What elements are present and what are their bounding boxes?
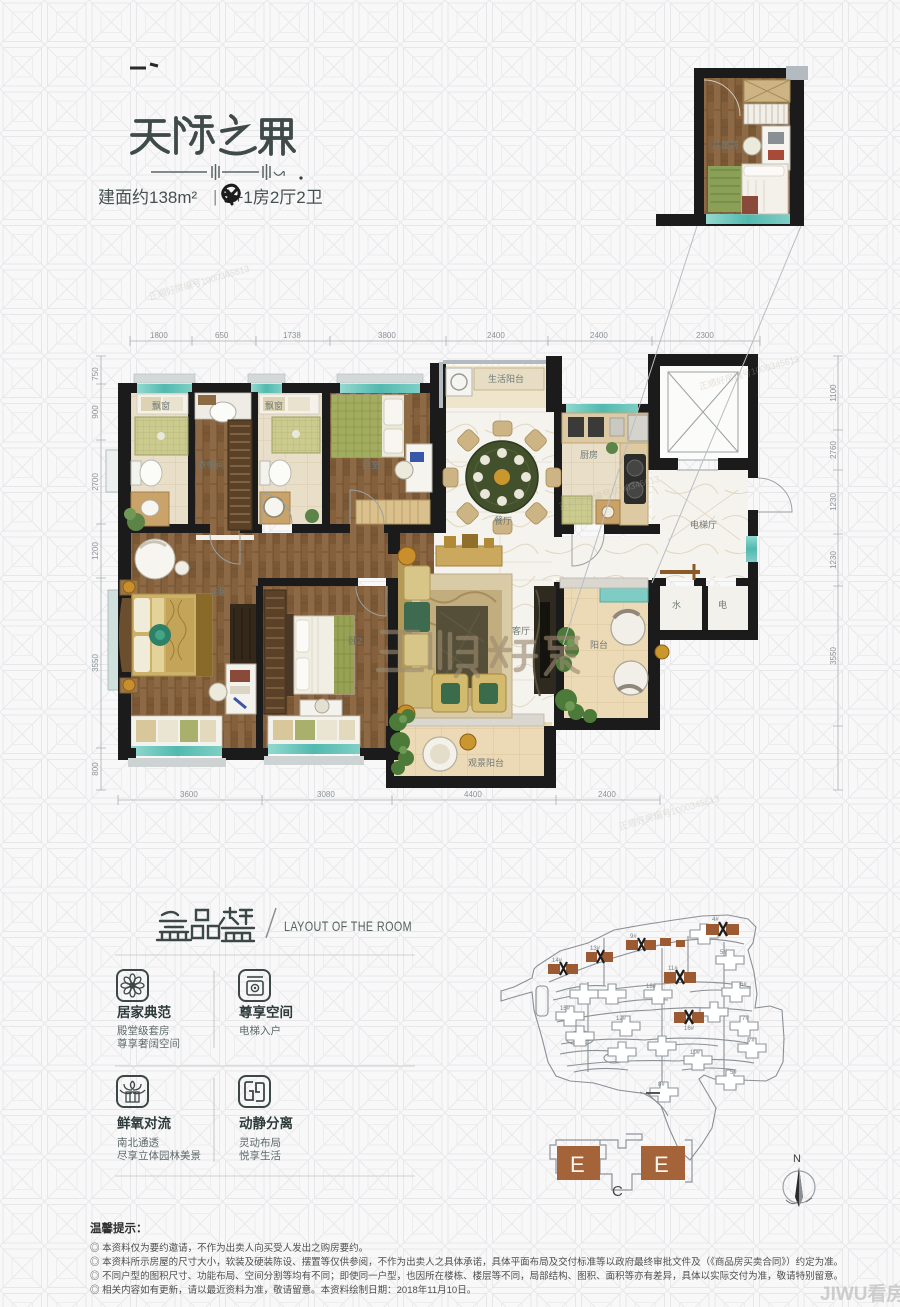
svg-text:1738: 1738 — [283, 331, 301, 340]
svg-text:8#: 8# — [658, 1082, 665, 1088]
svg-text:13#: 13# — [590, 946, 601, 952]
svg-text:悦享生活: 悦享生活 — [239, 1149, 281, 1162]
svg-text:◎ 相关内容如有更新，请以最近资料为准，敬请留意。本资料绘制: ◎ 相关内容如有更新，请以最近资料为准，敬请留意。本资料绘制日期：2018年11… — [90, 1284, 476, 1296]
svg-text:观景阳台: 观景阳台 — [468, 757, 504, 768]
svg-text:9#: 9# — [630, 934, 637, 940]
svg-text:温馨提示：: 温馨提示： — [90, 1221, 148, 1235]
svg-text:7#: 7# — [742, 1016, 749, 1022]
svg-text:1230: 1230 — [829, 493, 838, 511]
svg-text:尊享空间: 尊享空间 — [239, 1004, 293, 1020]
svg-text:居家典范: 居家典范 — [117, 1004, 171, 1020]
svg-text:1200: 1200 — [91, 542, 100, 560]
svg-text:10#: 10# — [690, 1050, 701, 1056]
svg-text:建面约138m²: 建面约138m² — [98, 188, 198, 207]
svg-text:2700: 2700 — [91, 473, 100, 491]
svg-text:2400: 2400 — [590, 331, 608, 340]
svg-text:主卧: 主卧 — [210, 586, 228, 597]
svg-text:11#: 11# — [668, 966, 678, 972]
svg-text:3800: 3800 — [378, 331, 396, 340]
svg-text:5#: 5# — [720, 950, 727, 956]
svg-text:灵动布局: 灵动布局 — [239, 1137, 281, 1149]
svg-text:阳台: 阳台 — [590, 639, 608, 650]
svg-text:2400: 2400 — [598, 790, 616, 799]
svg-text:卧2: 卧2 — [348, 635, 362, 646]
svg-text:尊享奢阔空间: 尊享奢阔空间 — [117, 1037, 180, 1050]
svg-text:12#: 12# — [616, 1016, 627, 1022]
svg-text:LAYOUT OF THE ROOM: LAYOUT OF THE ROOM — [284, 918, 412, 934]
svg-text:鲜氧对流: 鲜氧对流 — [117, 1115, 171, 1131]
svg-text:1800: 1800 — [150, 331, 168, 340]
svg-text:2760: 2760 — [829, 441, 838, 459]
svg-text:尽享立体园林美景: 尽享立体园林美景 — [117, 1149, 201, 1162]
svg-text:2300: 2300 — [696, 331, 714, 340]
svg-text:16#: 16# — [684, 1026, 695, 1032]
svg-text:卧室: 卧室 — [362, 459, 380, 470]
svg-text:电梯厅: 电梯厅 — [690, 519, 717, 530]
svg-text:◎ 不同户型的图积尺寸、功能布局、空间分割等均有不同；即使同: ◎ 不同户型的图积尺寸、功能布局、空间分割等均有不同；即使同一户型，也因所在楼栋… — [90, 1270, 843, 1282]
svg-text:750: 750 — [91, 367, 100, 381]
svg-text:3550: 3550 — [91, 654, 100, 672]
svg-text:生活阳台: 生活阳台 — [488, 373, 524, 384]
svg-text:1100: 1100 — [829, 384, 838, 402]
svg-text:飘窗: 飘窗 — [152, 400, 170, 411]
svg-text:6#: 6# — [740, 982, 747, 988]
svg-text:C: C — [612, 1183, 623, 1200]
svg-text:儿童房: 儿童房 — [712, 139, 739, 150]
svg-text:3550: 3550 — [829, 647, 838, 665]
svg-text:电: 电 — [718, 599, 727, 610]
svg-text:餐厅: 餐厅 — [494, 515, 512, 526]
svg-text:电梯入户: 电梯入户 — [239, 1024, 281, 1037]
svg-text:3080: 3080 — [317, 790, 335, 799]
svg-text:动静分离: 动静分离 — [239, 1115, 293, 1131]
svg-text:南北通透: 南北通透 — [117, 1136, 159, 1149]
svg-text:900: 900 — [91, 405, 100, 419]
svg-text:4400: 4400 — [464, 790, 482, 799]
svg-text:JIWU看房: JIWU看房 — [820, 1282, 900, 1305]
svg-text:◎ 本资料所示房屋的尺寸大小，软装及硬装陈设、摆置等仅供参阅: ◎ 本资料所示房屋的尺寸大小，软装及硬装陈设、摆置等仅供参阅，不作为出卖人之具体… — [90, 1256, 843, 1268]
svg-text:7#: 7# — [748, 1038, 755, 1044]
svg-text:4#: 4# — [712, 917, 719, 923]
svg-text:N: N — [793, 1153, 801, 1165]
svg-text:3600: 3600 — [180, 790, 198, 799]
svg-text:厨房: 厨房 — [580, 449, 598, 460]
svg-text:800: 800 — [91, 762, 100, 776]
svg-text:殿堂级套房: 殿堂级套房 — [117, 1024, 170, 1037]
svg-text:E: E — [570, 1152, 585, 1177]
svg-text:飘窗: 飘窗 — [265, 400, 283, 411]
svg-text:E: E — [654, 1152, 669, 1177]
svg-text:衣帽间: 衣帽间 — [198, 459, 225, 470]
svg-text:水: 水 — [672, 599, 681, 610]
svg-text:|: | — [213, 187, 217, 206]
svg-text:客厅: 客厅 — [512, 625, 530, 636]
svg-text:1230: 1230 — [829, 551, 838, 569]
svg-text:5#: 5# — [730, 1070, 737, 1076]
svg-text:650: 650 — [215, 331, 229, 340]
svg-text:◎ 本资料仅为要约邀请，不作为出卖人向买受人发出之购房要约。: ◎ 本资料仅为要约邀请，不作为出卖人向买受人发出之购房要约。 — [90, 1242, 368, 1254]
svg-text:14#: 14# — [552, 958, 563, 964]
svg-text:2400: 2400 — [487, 331, 505, 340]
svg-text:18#: 18# — [646, 984, 657, 990]
svg-text:15#: 15# — [560, 1006, 571, 1012]
